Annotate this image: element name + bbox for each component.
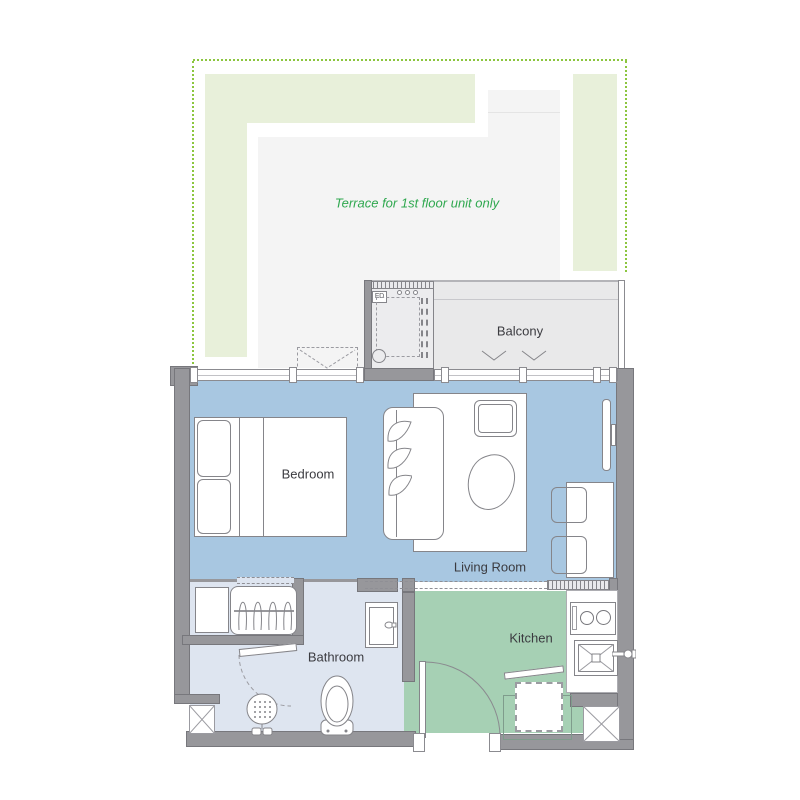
vent-dot-3 [413,290,418,295]
floor-plan: Terrace for 1st floor unit only FD Balco… [0,0,800,800]
awning-v-icon [298,348,357,371]
kitchen-label: Kitchen [509,631,552,646]
pillow [197,479,231,534]
entry-door-swing-arc [424,661,502,739]
wall-balcony-left [364,280,372,381]
vanity-faucet-icon [384,619,397,631]
ac-unit-dashed [376,297,420,357]
door-jamb [489,733,501,752]
washing-machine-dashed [515,682,563,732]
balcony-gutter-line [434,299,625,300]
coffee-table-inner [478,404,513,433]
pipe-riser-dashed-2 [426,298,428,358]
sink-faucet-icon [612,647,636,661]
bedroom-window [190,369,364,381]
dining-chair [551,487,587,523]
bathroom-label: Bathroom [308,650,364,665]
wall-mid-thin-right [304,579,357,582]
window-mullion [289,367,297,383]
door-jamb [413,733,425,752]
sliding-door-track [365,581,547,589]
column-x-right-icon [583,706,620,742]
terrace-step-line [488,112,560,113]
living-room-label: Living Room [454,560,526,575]
closet-shelf [195,587,229,633]
tv [602,399,611,471]
bed-fold-line [239,417,240,537]
tv-mount [611,424,616,446]
garden-strip-top [205,74,475,123]
garden-strip-right [573,74,617,271]
bedroom-label: Bedroom [282,467,335,482]
hanger-rail-icon [234,589,294,633]
balcony-rail-right [618,280,625,371]
wall-under-closet [364,368,434,381]
toilet-icon [318,675,356,738]
stove-burner [580,611,594,625]
stove-control-strip [572,606,577,630]
window-mullion [593,367,601,383]
wall-bottom-left [186,731,416,747]
wall-bath-kitchen [402,592,415,682]
window-mullion [519,367,527,383]
kitchen-sink-icon [578,644,614,672]
utility-hatch-strip [368,281,434,289]
window-mullion [356,367,364,383]
terrace-boundary-left [192,61,194,368]
wall-left [174,368,190,697]
column-x-left-icon [189,705,215,734]
drain-circle [372,349,386,363]
window-mullion [609,367,617,383]
slider-chevron-left-icon [481,349,507,362]
terrace-label: Terrace for 1st floor unit only [335,196,499,211]
sofa-leaf-cushions-icon [386,417,412,499]
vent-dot-2 [405,290,410,295]
vent-dot-1 [397,290,402,295]
pipe-riser-dashed-1 [421,298,423,358]
wall-right [616,368,634,740]
slider-chevron-right-icon [521,349,547,362]
wall-kitchen-step [570,693,618,707]
pouf-icon [464,453,518,515]
window-mullion [441,367,449,383]
balcony-label: Balcony [497,324,543,339]
bed-fold-line [263,417,264,537]
wall-mid-thin-left [190,579,237,582]
wall-left-step [174,694,220,704]
dining-chair [551,536,587,574]
terrace-boundary-right [625,61,627,272]
wardrobe-track-dashed [237,577,294,584]
terrace-boundary-top [193,59,627,61]
pillow [197,420,231,477]
coffee-table [474,400,517,437]
shower-head-icon [246,693,280,737]
window-mullion [190,367,198,383]
sliding-door-panel [547,580,609,590]
stove-burner [596,610,611,625]
